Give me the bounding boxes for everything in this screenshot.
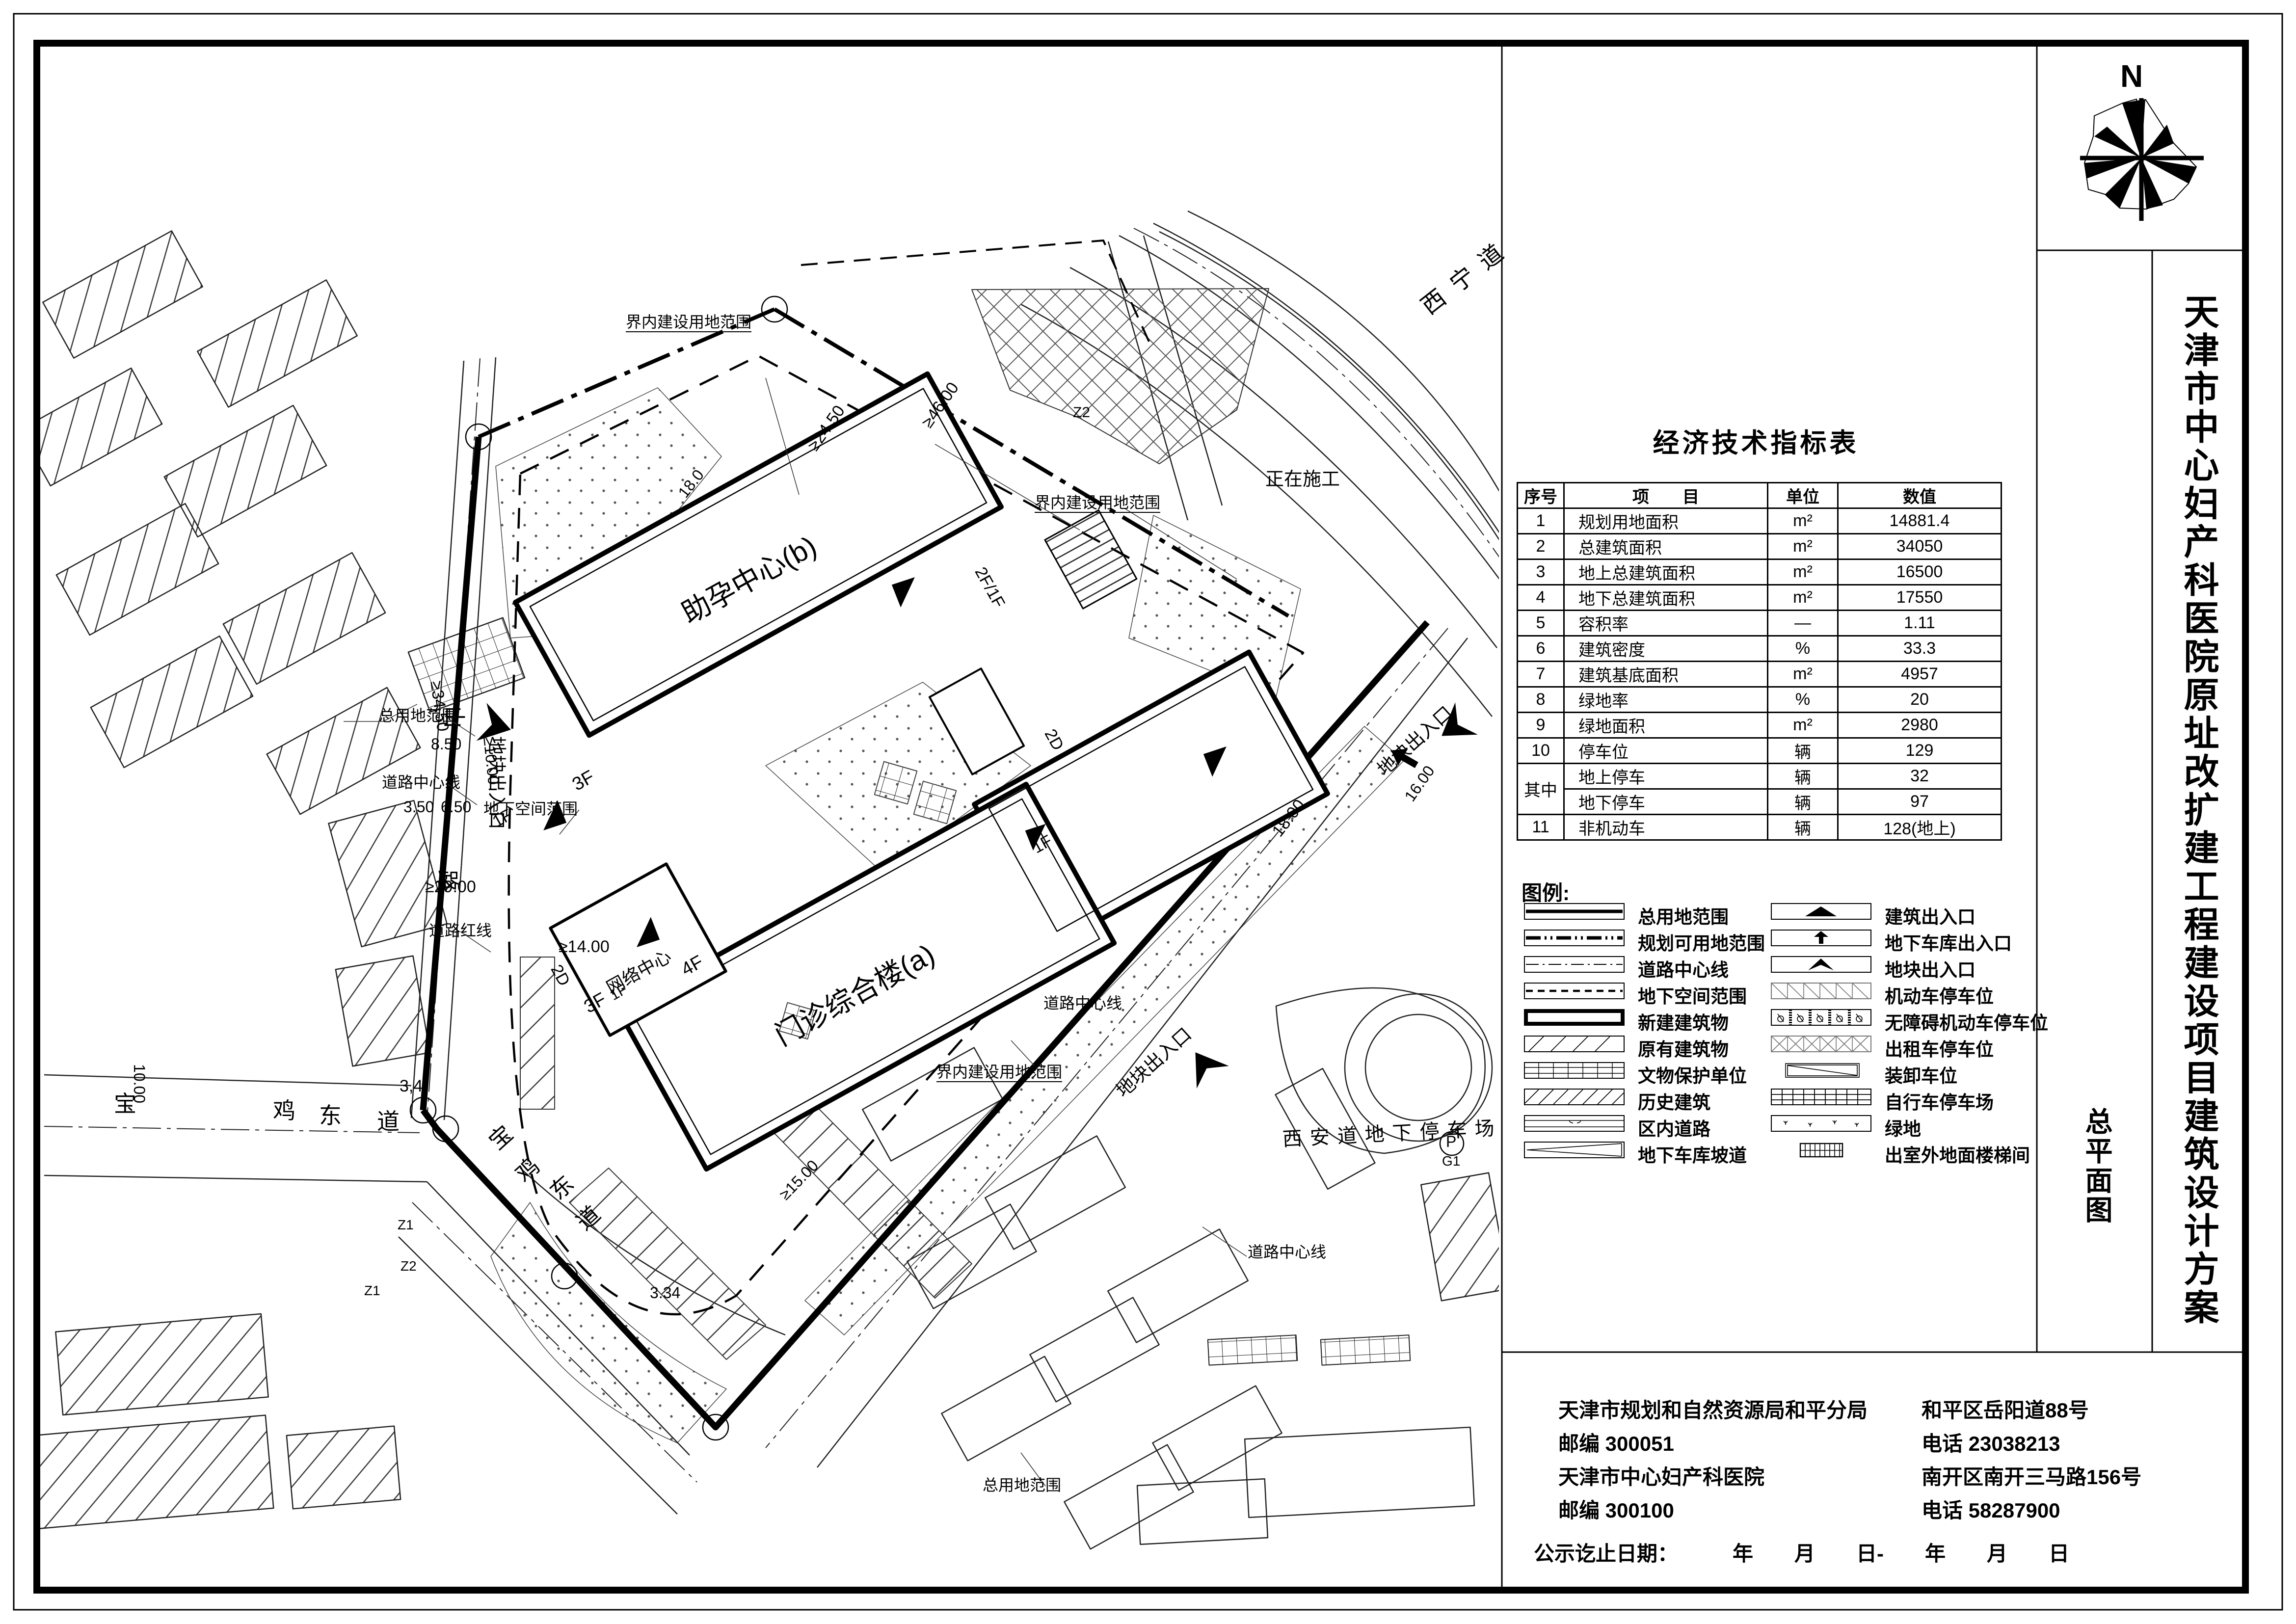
plan-label: 10.00 [132, 1064, 147, 1103]
econ-cell: 其中 [1518, 764, 1564, 815]
econ-cell: 地下停车 [1564, 789, 1768, 815]
econ-cell: — [1768, 611, 1838, 636]
plan-label: Z1 [398, 1218, 414, 1232]
econ-cell: 辆 [1768, 764, 1838, 789]
plan-label: 道路红线 [429, 923, 492, 938]
plan-label: ≥29.00 [425, 879, 476, 895]
plan-label: 3.34 [650, 1285, 680, 1301]
parking-loading-icon [1771, 1062, 1871, 1079]
econ-cell: 8 [1518, 687, 1564, 713]
footer-notice-value: 年 月 日- 年 月 日 [1733, 1537, 2069, 1567]
econ-cell: 33.3 [1838, 636, 2002, 662]
plan-label: G1 [1442, 1154, 1460, 1168]
econ-cell: 非机动车 [1564, 815, 1768, 840]
parking-accessible-icon [1771, 1009, 1871, 1026]
garage-ramp-icon [1524, 1142, 1625, 1158]
plan-label: P [1446, 1134, 1456, 1149]
plan-label: 界内建设用地范围 [1035, 495, 1160, 513]
drawing-sheet: 经济技术指标表 序号项 目单位数值1规划用地面积m²14881.42总建筑面积m… [0, 0, 2296, 1624]
legend-label: 规划可用地范围 [1638, 929, 1765, 955]
table-row: 7建筑基底面积m²4957 [1518, 662, 2002, 687]
plan-label: 道路中心线 [1043, 995, 1122, 1011]
footer-org1: 天津市规划和自然资源局和平分局 [1558, 1394, 1868, 1424]
econ-cell: 14881.4 [1838, 508, 2002, 534]
plan-label: Z2 [1073, 405, 1090, 420]
footer-org2: 天津市中心妇产科医院 [1558, 1461, 1764, 1491]
drawing-name-label: 总平面图 [2077, 1107, 2117, 1225]
north-arrow-icon [2080, 98, 2204, 221]
econ-header-1: 项 目 [1564, 483, 1768, 508]
legend-label: 无障碍机动车停车位 [1885, 1008, 2048, 1035]
footer-org1-address: 和平区岳阳道88号 [1922, 1394, 2089, 1424]
legend-label: 总用地范围 [1638, 902, 1729, 929]
legend-label: 绿地 [1885, 1114, 1921, 1141]
econ-cell: 10 [1518, 738, 1564, 764]
footer-org1-zip: 邮编 300051 [1558, 1427, 1674, 1457]
legend-label: 新建建筑物 [1638, 1008, 1729, 1035]
econ-cell: 7 [1518, 662, 1564, 687]
legend-label: 建筑出入口 [1885, 902, 1976, 929]
plan-label: 鸡 [273, 1099, 295, 1122]
heritage-unit-icon [1524, 1062, 1625, 1079]
econ-cell: 地上停车 [1564, 764, 1768, 789]
econ-header-2: 单位 [1768, 483, 1838, 508]
econ-cell: 建筑基底面积 [1564, 662, 1768, 687]
econ-cell: 绿地面积 [1564, 713, 1768, 738]
table-row: 4地下总建筑面积m²17550 [1518, 585, 2002, 611]
plan-label: 正在施工 [1265, 470, 1340, 489]
footer-org2-zip: 邮编 300100 [1558, 1494, 1674, 1524]
legend-label: 历史建筑 [1638, 1088, 1710, 1114]
econ-cell: 4 [1518, 585, 1564, 611]
entrance-building-icon [1771, 903, 1871, 920]
table-row: 5容积率—1.11 [1518, 611, 2002, 636]
legend-label: 区内道路 [1638, 1114, 1710, 1141]
econ-cell: 128(地上) [1838, 815, 2002, 840]
plan-label: Z1 [364, 1284, 380, 1298]
plan-label: ≥14.00 [559, 938, 610, 955]
footer-org1-tel: 电话 23038213 [1922, 1427, 2060, 1457]
plan-label: 道路中心线 [382, 774, 460, 790]
econ-cell: 停车位 [1564, 738, 1768, 764]
econ-cell: 6 [1518, 636, 1564, 662]
econ-cell: 容积率 [1564, 611, 1768, 636]
table-row: 8绿地率%20 [1518, 687, 2002, 713]
econ-cell: 97 [1838, 789, 2002, 815]
project-title: 天津市中心妇产科医院原址改扩建工程建设项目建筑设计方案 [2159, 293, 2237, 1344]
plan-label: 8.50 [431, 736, 461, 752]
underground-extent-icon [1524, 983, 1625, 999]
econ-cell: 绿地率 [1564, 687, 1768, 713]
legend-title: 图例: [1522, 877, 1570, 906]
table-row: 10停车位辆129 [1518, 738, 2002, 764]
econ-cell: m² [1768, 508, 1838, 534]
econ-cell: 规划用地面积 [1564, 508, 1768, 534]
table-row: 9绿地面积m²2980 [1518, 713, 2002, 738]
econ-cell: 32 [1838, 764, 2002, 789]
legend-label: 自行车停车场 [1885, 1088, 1994, 1114]
econ-table: 序号项 目单位数值1规划用地面积m²14881.42总建筑面积m²340503地… [1517, 482, 2002, 841]
parking-motor-icon [1771, 983, 1871, 999]
existing-building-icon [1524, 1036, 1625, 1052]
econ-cell: m² [1768, 559, 1838, 585]
boundary-total-icon [1524, 903, 1625, 920]
econ-cell: 5 [1518, 611, 1564, 636]
legend-label: 原有建筑物 [1638, 1035, 1729, 1061]
econ-cell: 辆 [1768, 789, 1838, 815]
table-row: 1规划用地面积m²14881.4 [1518, 508, 2002, 534]
econ-cell: 1.11 [1838, 611, 2002, 636]
econ-cell: 地上总建筑面积 [1564, 559, 1768, 585]
plan-label: 3.50 [403, 799, 434, 815]
legend-label: 装卸车位 [1885, 1061, 1957, 1088]
econ-cell: 11 [1518, 815, 1564, 840]
boundary-usable-icon [1524, 930, 1625, 946]
econ-cell: m² [1768, 585, 1838, 611]
table-row: 11非机动车辆128(地上) [1518, 815, 2002, 840]
parking-bicycle-icon [1771, 1089, 1871, 1105]
econ-cell: 9 [1518, 713, 1564, 738]
green-space-icon [1771, 1115, 1871, 1132]
econ-cell: 34050 [1838, 534, 2002, 559]
econ-cell: 辆 [1768, 738, 1838, 764]
legend-label: 出租车停车位 [1885, 1035, 1994, 1061]
table-row: 地下停车辆97 [1518, 789, 2002, 815]
econ-cell: 2 [1518, 534, 1564, 559]
plan-label: 6.50 [441, 799, 471, 815]
north-label: N [2120, 58, 2143, 94]
econ-cell: 20 [1838, 687, 2002, 713]
stair-exit-icon [1771, 1142, 1871, 1158]
econ-cell: 129 [1838, 738, 2002, 764]
internal-road-icon [1524, 1115, 1625, 1132]
entrance-garage-icon [1771, 930, 1871, 946]
econ-cell: 建筑密度 [1564, 636, 1768, 662]
econ-cell: 4957 [1838, 662, 2002, 687]
econ-cell: m² [1768, 713, 1838, 738]
plan-label: 界内建设用地范围 [936, 1064, 1062, 1082]
plan-label: 道路中心线 [1248, 1244, 1326, 1260]
legend-label: 地下车库坡道 [1638, 1141, 1747, 1167]
footer-notice-label: 公示讫止日期： [1534, 1537, 1678, 1567]
legend-label: 地下空间范围 [1638, 982, 1747, 1008]
econ-cell: % [1768, 687, 1838, 713]
legend-label: 道路中心线 [1638, 955, 1729, 982]
table-row: 其中地上停车辆32 [1518, 764, 2002, 789]
econ-cell: 3 [1518, 559, 1564, 585]
legend-label: 文物保护单位 [1638, 1061, 1747, 1088]
plan-label: 总用地范围 [983, 1477, 1061, 1493]
historic-building-icon [1524, 1089, 1625, 1105]
legend-label: 出室外地面楼梯间 [1885, 1141, 2030, 1167]
econ-cell: 1 [1518, 508, 1564, 534]
econ-cell: % [1768, 636, 1838, 662]
footer-org2-address: 南开区南开三马路156号 [1922, 1461, 2141, 1491]
legend-label: 地块出入口 [1885, 955, 1976, 982]
econ-cell: m² [1768, 662, 1838, 687]
entrance-site-icon [1771, 956, 1871, 973]
legend-label: 地下车库出入口 [1885, 929, 2012, 955]
econ-cell: 地下总建筑面积 [1564, 585, 1768, 611]
new-building-icon [1524, 1009, 1625, 1026]
legend-label: 机动车停车位 [1885, 982, 1994, 1008]
footer-org2-tel: 电话 58287900 [1922, 1494, 2060, 1524]
econ-cell: 17550 [1838, 585, 2002, 611]
econ-table-title: 经济技术指标表 [1517, 421, 1995, 460]
table-row: 3地上总建筑面积m²16500 [1518, 559, 2002, 585]
road-center-icon [1524, 956, 1625, 973]
econ-cell: 2980 [1838, 713, 2002, 738]
econ-cell: 16500 [1838, 559, 2002, 585]
econ-header-0: 序号 [1518, 483, 1564, 508]
table-row: 6建筑密度%33.3 [1518, 636, 2002, 662]
plan-label: 道 [377, 1110, 400, 1133]
plan-label: Z2 [400, 1259, 417, 1273]
econ-cell: 辆 [1768, 815, 1838, 840]
parking-taxi-icon [1771, 1036, 1871, 1052]
plan-label: 3,4 [400, 1078, 423, 1094]
plan-label: 界内建设用地范围 [626, 314, 751, 332]
econ-cell: m² [1768, 534, 1838, 559]
plan-label: 东 [319, 1104, 342, 1127]
econ-cell: 总建筑面积 [1564, 534, 1768, 559]
econ-header-3: 数值 [1838, 483, 2002, 508]
table-row: 2总建筑面积m²34050 [1518, 534, 2002, 559]
